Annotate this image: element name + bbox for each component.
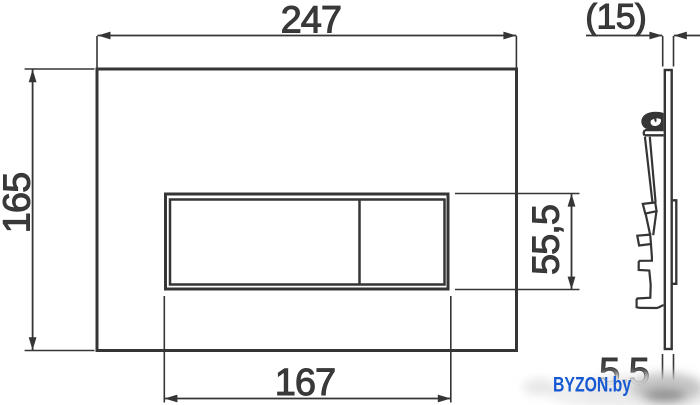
svg-text:BYZON.by: BYZON.by — [553, 372, 632, 396]
svg-text:165: 165 — [0, 173, 39, 233]
svg-text:55,5: 55,5 — [526, 205, 568, 275]
svg-text:(15): (15) — [585, 0, 646, 37]
svg-text:247: 247 — [281, 0, 341, 42]
svg-text:167: 167 — [275, 362, 335, 404]
